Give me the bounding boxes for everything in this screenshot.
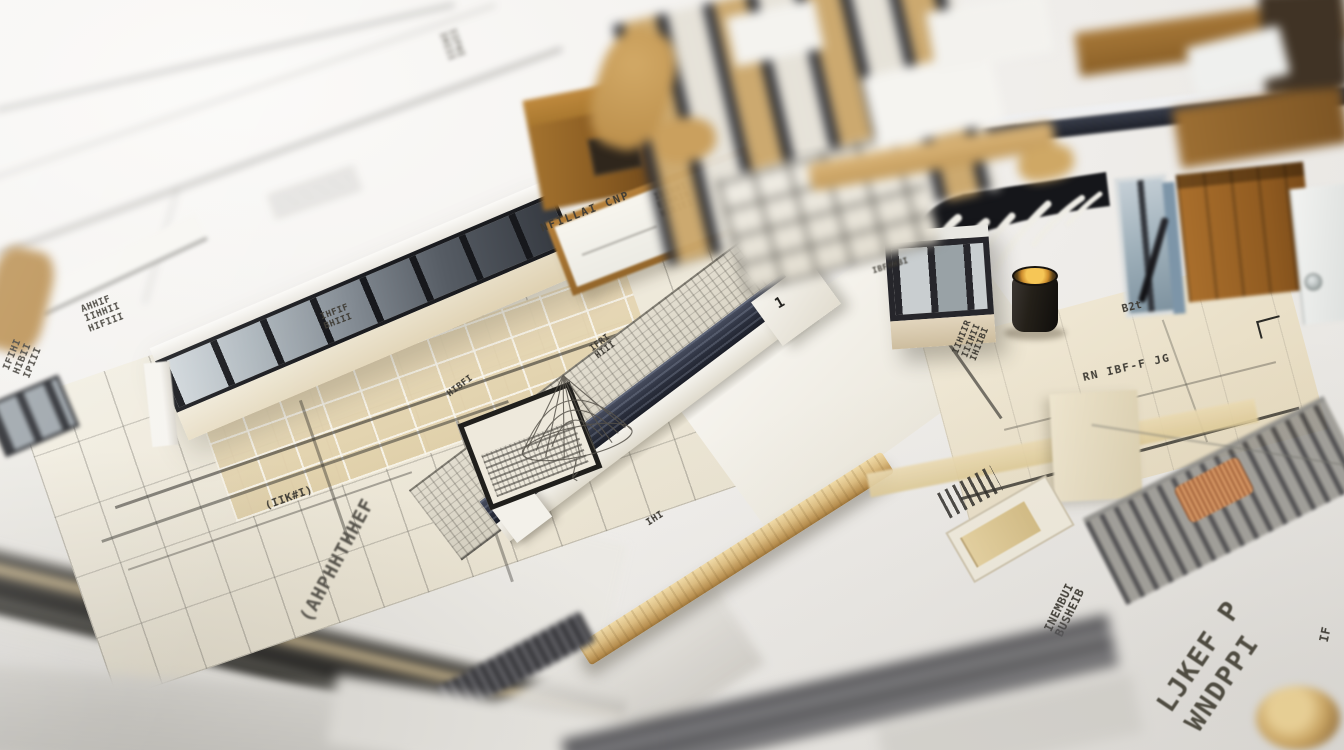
gold-knob — [1256, 686, 1340, 750]
architectural-model-photo: IBIHHI EIHRIB HIBIEI — [0, 0, 1344, 750]
foreground-blur — [0, 0, 1344, 750]
